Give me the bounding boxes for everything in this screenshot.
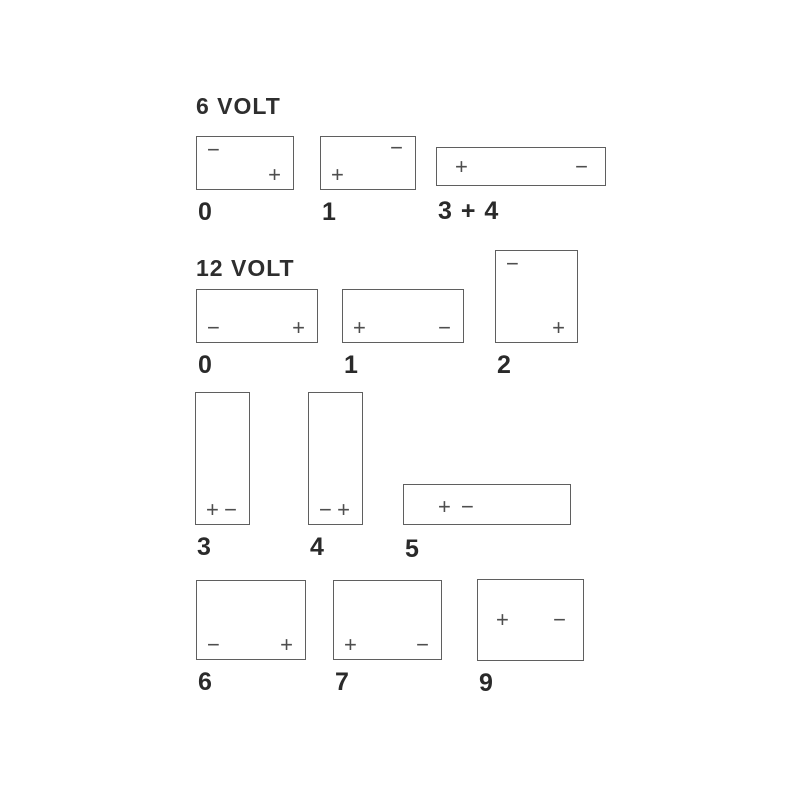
- battery-box: +−: [342, 289, 464, 343]
- battery-label: 3: [197, 533, 250, 562]
- battery-label: 5: [405, 535, 571, 564]
- positive-terminal-icon: +: [337, 499, 350, 521]
- battery-figure-6v-3-4: +− 3 + 4: [436, 147, 606, 226]
- negative-terminal-icon: −: [461, 496, 474, 518]
- negative-terminal-icon: −: [224, 499, 237, 521]
- negative-terminal-icon: −: [207, 139, 220, 161]
- battery-figure-12v-6: −+ 6: [196, 580, 306, 697]
- positive-terminal-icon: +: [552, 317, 565, 339]
- battery-label: 0: [198, 198, 294, 227]
- battery-box: +−: [403, 484, 571, 525]
- battery-figure-12v-1: +− 1: [342, 289, 464, 380]
- battery-label: 3 + 4: [438, 197, 606, 226]
- battery-box: −+: [308, 392, 363, 525]
- negative-terminal-icon: −: [207, 317, 220, 339]
- battery-box: +−: [436, 147, 606, 186]
- battery-box: −+: [196, 580, 306, 660]
- battery-figure-12v-5: +− 5: [403, 484, 571, 564]
- positive-terminal-icon: +: [438, 496, 451, 518]
- battery-label: 6: [198, 668, 306, 697]
- section-heading-12-volt: 12 VOLT: [196, 255, 295, 282]
- negative-terminal-icon: −: [207, 634, 220, 656]
- positive-terminal-icon: +: [268, 164, 281, 186]
- positive-terminal-icon: +: [331, 164, 344, 186]
- positive-terminal-icon: +: [292, 317, 305, 339]
- battery-label: 4: [310, 533, 363, 562]
- battery-box: +−: [477, 579, 584, 661]
- battery-box: −+: [495, 250, 578, 343]
- battery-figure-12v-0: −+ 0: [196, 289, 318, 380]
- positive-terminal-icon: +: [353, 317, 366, 339]
- battery-label: 2: [497, 351, 578, 380]
- negative-terminal-icon: −: [575, 156, 588, 178]
- battery-figure-12v-7: +− 7: [333, 580, 442, 697]
- positive-terminal-icon: +: [496, 609, 509, 631]
- negative-terminal-icon: −: [506, 253, 519, 275]
- battery-box: −+: [196, 289, 318, 343]
- battery-box: −+: [196, 136, 294, 190]
- battery-label: 0: [198, 351, 318, 380]
- section-heading-6-volt: 6 VOLT: [196, 93, 281, 120]
- battery-box: +−: [195, 392, 250, 525]
- battery-label: 9: [479, 669, 584, 698]
- negative-terminal-icon: −: [553, 609, 566, 631]
- positive-terminal-icon: +: [280, 634, 293, 656]
- battery-box: +−: [333, 580, 442, 660]
- battery-figure-6v-1: −+ 1: [320, 136, 416, 227]
- positive-terminal-icon: +: [206, 499, 219, 521]
- battery-figure-12v-9: +− 9: [477, 579, 584, 698]
- battery-box: −+: [320, 136, 416, 190]
- battery-label: 1: [344, 351, 464, 380]
- battery-figure-12v-3: +− 3: [195, 392, 250, 562]
- negative-terminal-icon: −: [416, 634, 429, 656]
- positive-terminal-icon: +: [344, 634, 357, 656]
- battery-label: 1: [322, 198, 416, 227]
- negative-terminal-icon: −: [390, 137, 403, 159]
- negative-terminal-icon: −: [319, 499, 332, 521]
- battery-figure-6v-0: −+ 0: [196, 136, 294, 227]
- battery-figure-12v-4: −+ 4: [308, 392, 363, 562]
- battery-label: 7: [335, 668, 442, 697]
- negative-terminal-icon: −: [438, 317, 451, 339]
- positive-terminal-icon: +: [455, 156, 468, 178]
- battery-layout-diagram: 6 VOLT −+ 0 −+ 1 +− 3 + 4 12 VOLT −+ 0 +…: [0, 0, 800, 800]
- battery-figure-12v-2: −+ 2: [495, 250, 578, 380]
